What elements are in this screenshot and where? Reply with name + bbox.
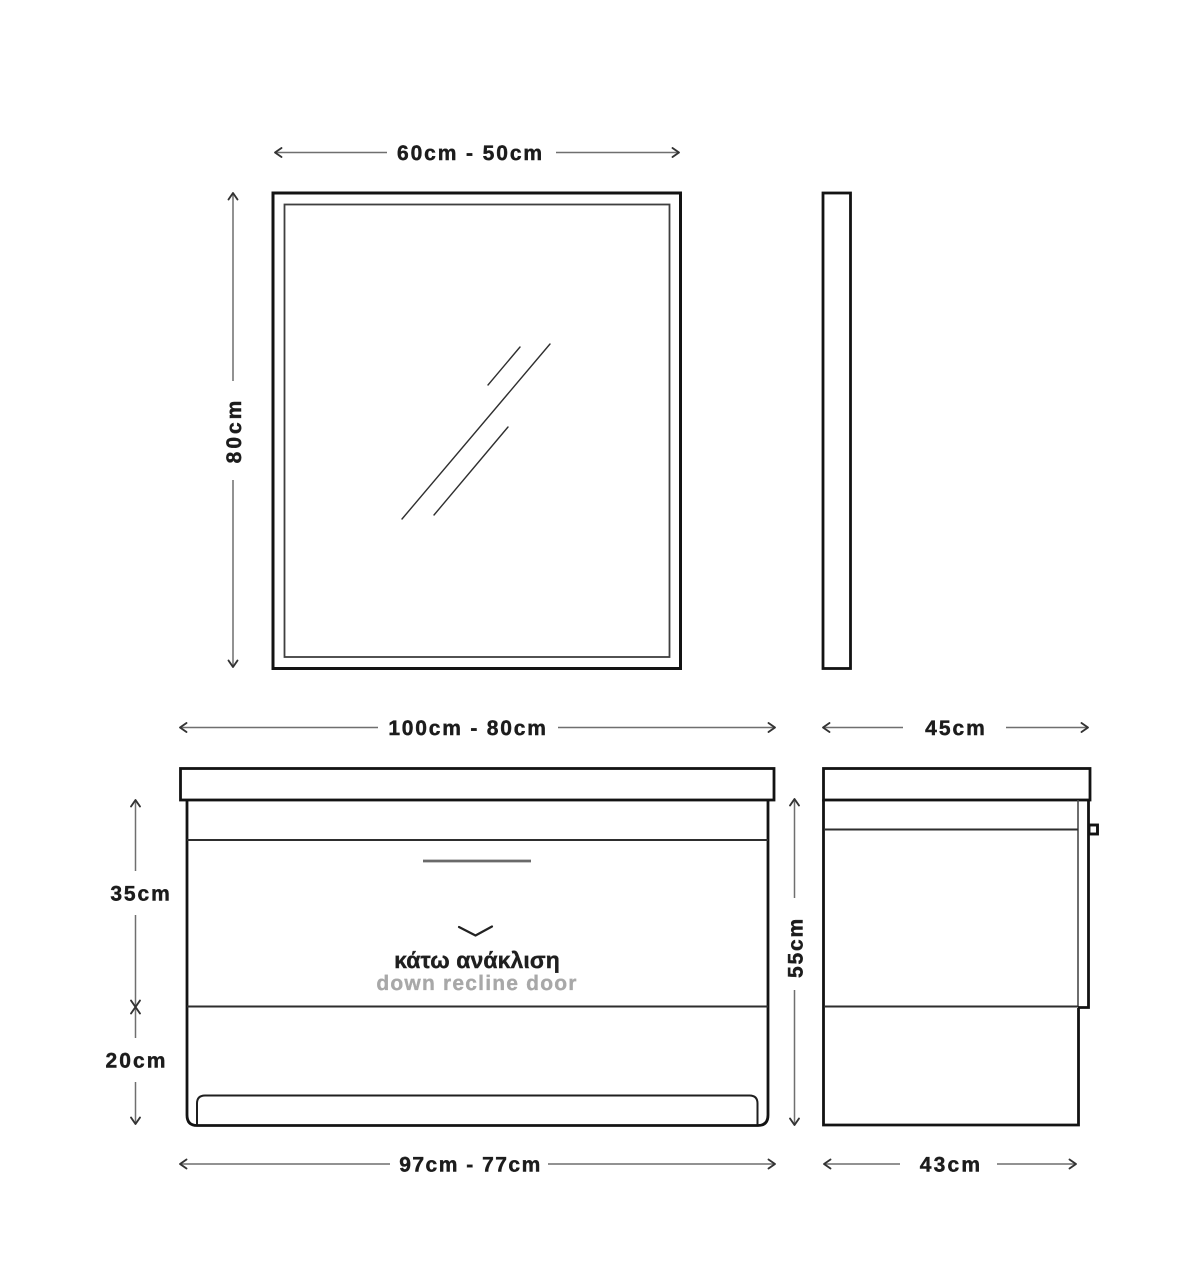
svg-text:60cm - 50cm: 60cm - 50cm: [397, 142, 544, 165]
svg-text:43cm: 43cm: [920, 1154, 983, 1177]
svg-text:20cm: 20cm: [105, 1050, 167, 1073]
svg-text:80cm: 80cm: [223, 398, 246, 464]
svg-text:100cm - 80cm: 100cm - 80cm: [388, 717, 547, 740]
svg-text:35cm: 35cm: [110, 883, 171, 906]
svg-text:97cm - 77cm: 97cm - 77cm: [399, 1154, 542, 1177]
svg-text:45cm: 45cm: [925, 717, 987, 740]
svg-text:down recline door: down recline door: [376, 972, 577, 995]
svg-text:κάτω ανάκλιση: κάτω ανάκλιση: [394, 947, 560, 973]
svg-text:55cm: 55cm: [785, 917, 808, 978]
